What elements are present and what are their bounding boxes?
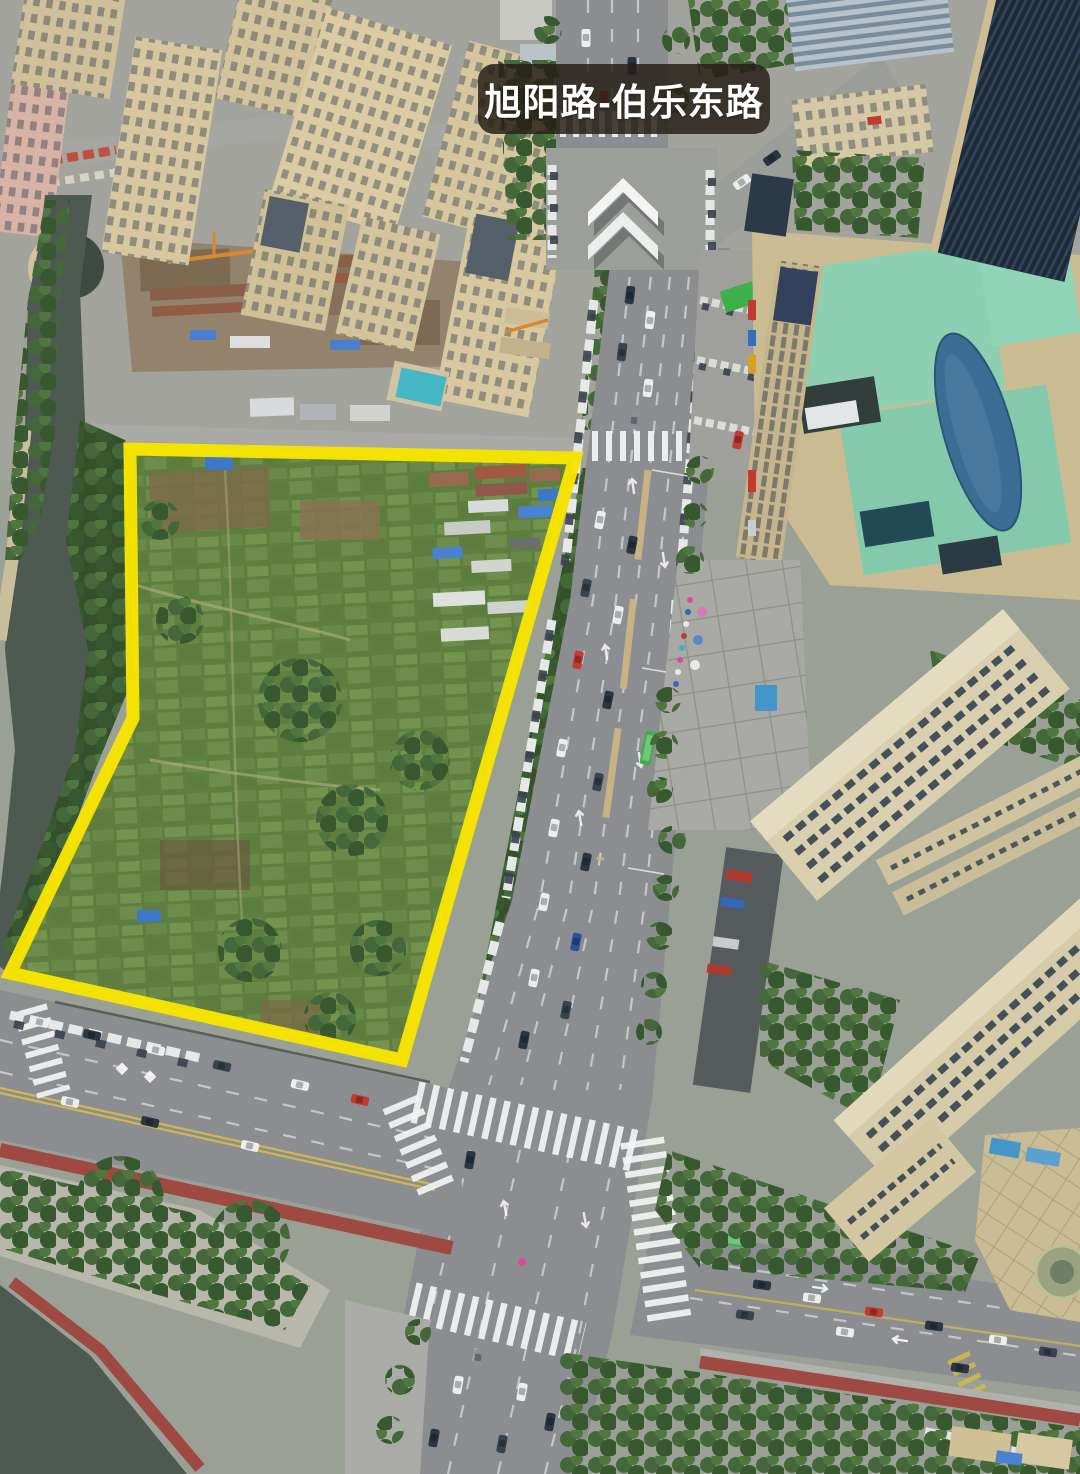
glass-lowrise: [744, 173, 794, 236]
screenshot-root: 旭阳路-伯乐东路: [0, 0, 1080, 1474]
aerial-photograph: [0, 0, 1080, 1474]
blue-canopy: [755, 685, 777, 711]
location-label: 旭阳路-伯乐东路: [478, 64, 770, 134]
scooter-rider: [518, 1258, 526, 1266]
location-label-text: 旭阳路-伯乐东路: [484, 72, 763, 126]
entrance-plaza: [546, 148, 718, 270]
